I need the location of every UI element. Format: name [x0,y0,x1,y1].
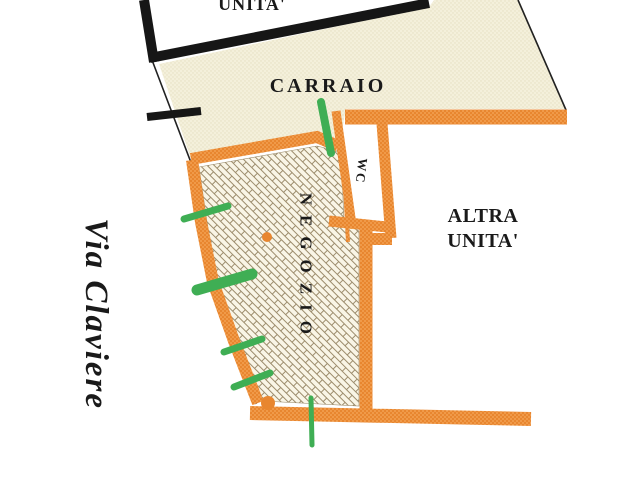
negozio-floor-hatch [199,146,359,406]
orange-wall-bottom [250,413,531,419]
corner-column [261,396,275,410]
orange-wall-wc-right [381,111,391,238]
label-negozio: NEGOZIO [296,188,315,348]
column-dot [262,232,272,242]
label-adjacent-unit: UNITA' [182,0,322,15]
orange-wall-wc-bottom [329,221,387,227]
door-marker-bottom [311,398,312,445]
label-street-name: Via Claviere [78,199,114,429]
floor-plan: UNITA' CARRAIO WC NEGOZIO ALTRA UNITA' V… [0,0,640,480]
label-altra-unita: ALTRA UNITA' [441,204,525,254]
label-altra-unita-line2: UNITA' [441,229,525,254]
label-carraio: CARRAIO [238,75,418,97]
label-altra-unita-line1: ALTRA [441,204,525,229]
